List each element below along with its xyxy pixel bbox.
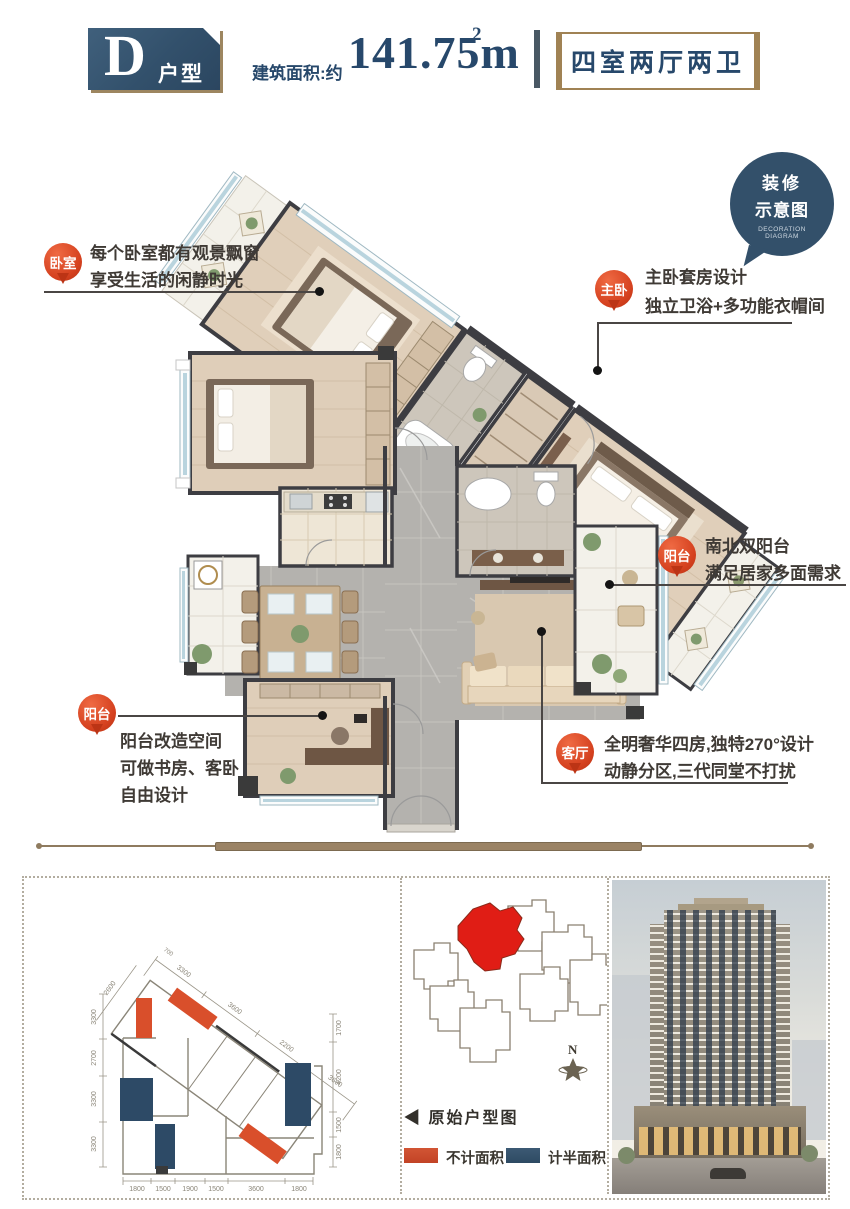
svg-text:1800: 1800 [129,1186,145,1192]
compass-n: N [568,1042,578,1057]
original-plan-label: ◀ 原始户型图 [404,1104,518,1128]
bed-2 [206,379,314,469]
svg-text:1800: 1800 [336,1144,343,1160]
divider-end-right [808,843,814,849]
pin-master-tag: 主卧 [601,279,628,299]
building-rendering [612,880,826,1194]
leader-dot-bedroom [315,287,324,296]
svg-text:1500: 1500 [336,1117,343,1133]
callout-balcony-right-text: 南北双阳台 满足居家多面需求 [705,533,841,587]
leader-balcony-left [118,715,324,717]
svg-text:3300: 3300 [91,1136,98,1152]
area-label: 建筑面积:约 [252,59,343,84]
callout-living-text: 全明奢华四房,独特270°设计 动静分区,三代同堂不打扰 [604,731,814,785]
svg-text:3300: 3300 [91,1091,98,1107]
panel-separator-2 [607,878,609,1194]
original-floor-plan: 3300 3600 2200 3600 2600 700 1800 1500 1… [28,886,398,1192]
bathroom-2 [457,466,575,576]
pin-balcony-left-tag: 阳台 [84,703,111,723]
callout-master-text: 主卧套房设计 独立卫浴+多功能衣帽间 [645,263,825,321]
svg-text:3600: 3600 [226,1001,243,1016]
right-balcony [575,526,668,695]
svg-text:3300: 3300 [175,964,192,979]
orig-red-bay-1 [168,988,218,1030]
unit-letter-box: D 户型 [88,28,220,90]
orig-blue-3 [285,1063,311,1126]
site-plan: N [400,888,607,1103]
callout-balcony-left-text: 阳台改造空间 可做书房、客卧 自由设计 [120,728,239,809]
area-value: 141.75m [348,26,520,79]
svg-text:1500: 1500 [155,1186,171,1192]
pin-living: 客厅 [556,733,594,771]
svg-text:3300: 3300 [91,1009,98,1025]
pin-balcony-right-tag: 阳台 [664,545,691,565]
leader-dot-balcony-left [318,711,327,720]
orig-red-bay-2 [239,1123,287,1164]
leader-master-v [597,322,599,370]
svg-text:700: 700 [162,947,174,958]
orig-red-bay-3 [136,998,152,1038]
podium [634,1106,806,1160]
car [710,1168,746,1179]
svg-text:1700: 1700 [336,1020,343,1036]
flyer-page: D 户型 建筑面积:约 141.75m 2 四室两厅两卫 装修 示意图 DECO… [0,0,850,1209]
orig-blue-2 [155,1124,175,1169]
pin-balcony-left: 阳台 [78,694,116,732]
orig-blue-1 [120,1078,153,1121]
leader-master-h [597,322,792,324]
pin-living-tag: 客厅 [562,742,589,762]
tree-left [618,1147,635,1164]
divider-bar [215,842,642,851]
legend-label-red: 不计面积 [446,1147,504,1168]
compass: N [559,1042,587,1081]
unit-letter: D [104,22,146,89]
unit-type-label: 户型 [158,58,204,88]
washing-machine [194,561,222,589]
tower-wing-left [650,924,665,1116]
svg-text:1900: 1900 [182,1186,198,1192]
site-highlighted-unit [458,903,524,971]
pin-balcony-right: 阳台 [658,536,696,574]
leader-dot-master [593,366,602,375]
corner-notch [203,28,220,45]
rooms-count-box: 四室两厅两卫 [556,32,760,90]
svg-text:3600: 3600 [248,1186,264,1192]
leader-dot-balcony-right [605,580,614,589]
pin-bedroom: 卧室 [44,243,82,281]
tower-facade [664,910,776,1118]
legend-swatch-red [404,1148,438,1163]
legend-swatch-blue [506,1148,540,1163]
svg-text:2200: 2200 [278,1039,295,1054]
header-separator [534,30,540,88]
stove [324,494,352,509]
legend-label-blue: 计半面积 [548,1147,606,1168]
bedroom-2 [176,353,427,493]
svg-text:4200: 4200 [336,1069,343,1085]
kitchen [280,488,392,566]
svg-text:2700: 2700 [91,1050,98,1066]
leader-living-v [541,633,543,783]
pin-master: 主卧 [595,270,633,308]
callout-bedroom-text: 每个卧室都有观景飘窗 享受生活的闲静时光 [90,240,260,294]
svg-text:1500: 1500 [208,1186,224,1192]
pin-bedroom-tag: 卧室 [50,252,77,272]
tower-wing-right [775,924,790,1116]
tree-right [801,1145,818,1162]
leader-dot-living [537,627,546,636]
area-superscript: 2 [472,24,482,46]
svg-text:1800: 1800 [291,1186,307,1192]
